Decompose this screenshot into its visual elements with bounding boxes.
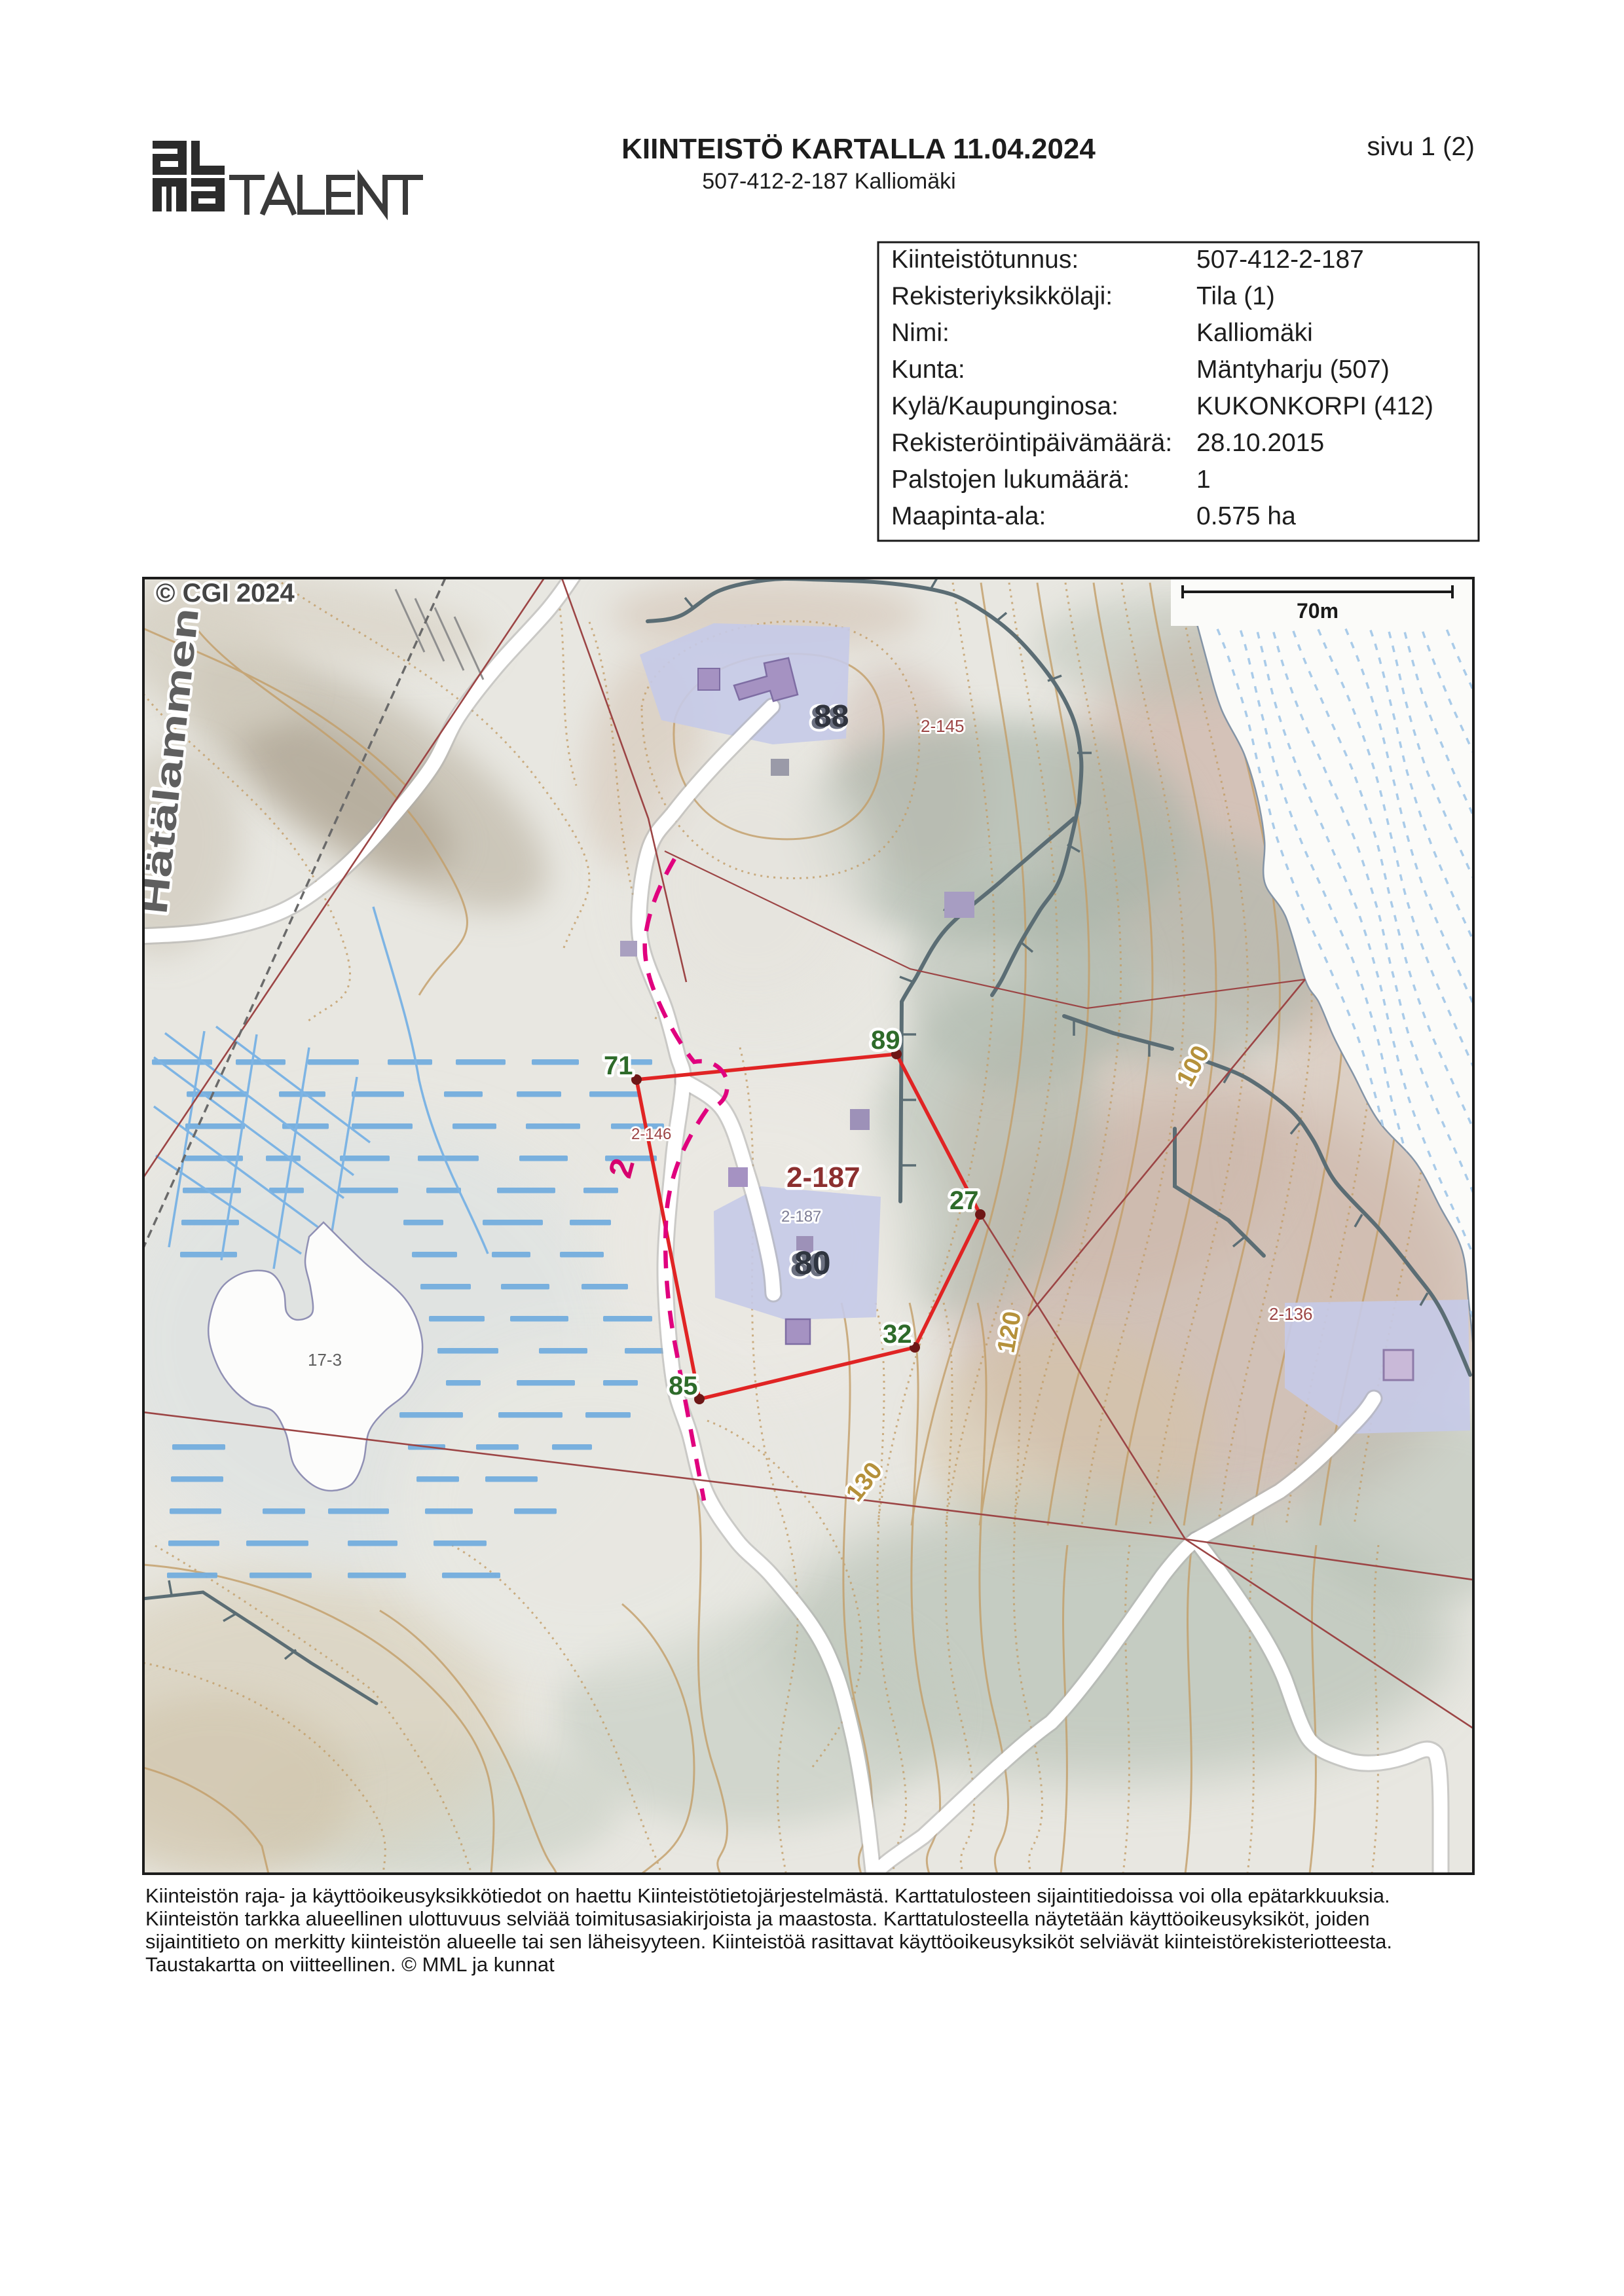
svg-text:2-146: 2-146 — [631, 1125, 671, 1143]
svg-text:Kalliomäki: Kalliomäki — [1196, 319, 1313, 347]
svg-text:Maapinta-ala:: Maapinta-ala: — [891, 502, 1046, 530]
svg-text:KIINTEISTÖ KARTALLA 11.04.2024: KIINTEISTÖ KARTALLA 11.04.2024 — [621, 133, 1096, 165]
svg-text:Mäntyharju (507): Mäntyharju (507) — [1196, 355, 1390, 384]
svg-text:Rekisteröintipäivämäärä:: Rekisteröintipäivämäärä: — [891, 429, 1172, 457]
svg-text:KUKONKORPI (412): KUKONKORPI (412) — [1196, 392, 1433, 420]
svg-text:sivu 1 (2): sivu 1 (2) — [1367, 132, 1475, 161]
svg-text:28.10.2015: 28.10.2015 — [1196, 429, 1324, 457]
svg-text:2-136: 2-136 — [1269, 1304, 1313, 1324]
svg-text:Rekisteriyksikkölaji:: Rekisteriyksikkölaji: — [891, 282, 1113, 310]
svg-text:70m: 70m — [1297, 599, 1338, 623]
svg-text:Tila (1): Tila (1) — [1196, 282, 1275, 310]
svg-text:71: 71 — [604, 1051, 633, 1080]
svg-text:Nimi:: Nimi: — [891, 319, 950, 347]
svg-text:2-145: 2-145 — [921, 716, 965, 736]
svg-text:17-3: 17-3 — [308, 1350, 342, 1370]
svg-text:80: 80 — [794, 1245, 831, 1281]
svg-text:Kiinteistön raja- ja käyttöoik: Kiinteistön raja- ja käyttöoikeusyksikkö… — [145, 1884, 1390, 1907]
svg-text:85: 85 — [669, 1372, 698, 1400]
svg-text:Taustakartta on viitteellinen.: Taustakartta on viitteellinen. © MML ja … — [145, 1953, 555, 1976]
svg-text:Palstojen lukumäärä:: Palstojen lukumäärä: — [891, 465, 1130, 494]
svg-text:27: 27 — [950, 1186, 979, 1215]
svg-text:1: 1 — [1196, 465, 1211, 494]
svg-text:2-187: 2-187 — [786, 1161, 860, 1194]
svg-text:0.575 ha: 0.575 ha — [1196, 502, 1296, 530]
svg-text:2-187: 2-187 — [781, 1208, 821, 1226]
svg-text:Kunta:: Kunta: — [891, 355, 965, 384]
svg-text:Kiinteistötunnus:: Kiinteistötunnus: — [891, 246, 1079, 274]
svg-text:© CGI 2024: © CGI 2024 — [156, 579, 295, 608]
svg-text:507-412-2-187: 507-412-2-187 — [1196, 246, 1364, 274]
svg-text:Kylä/Kaupunginosa:: Kylä/Kaupunginosa: — [891, 392, 1118, 420]
svg-text:88: 88 — [814, 699, 849, 734]
svg-text:Kiinteistön tarkka alueellinen: Kiinteistön tarkka alueellinen ulottuvuu… — [145, 1907, 1370, 1930]
svg-text:32: 32 — [883, 1320, 912, 1349]
svg-text:sijaintitieto on merkitty kiin: sijaintitieto on merkitty kiinteistön al… — [145, 1930, 1392, 1953]
svg-text:507-412-2-187 Kalliomäki: 507-412-2-187 Kalliomäki — [702, 169, 955, 194]
svg-text:89: 89 — [871, 1026, 900, 1055]
